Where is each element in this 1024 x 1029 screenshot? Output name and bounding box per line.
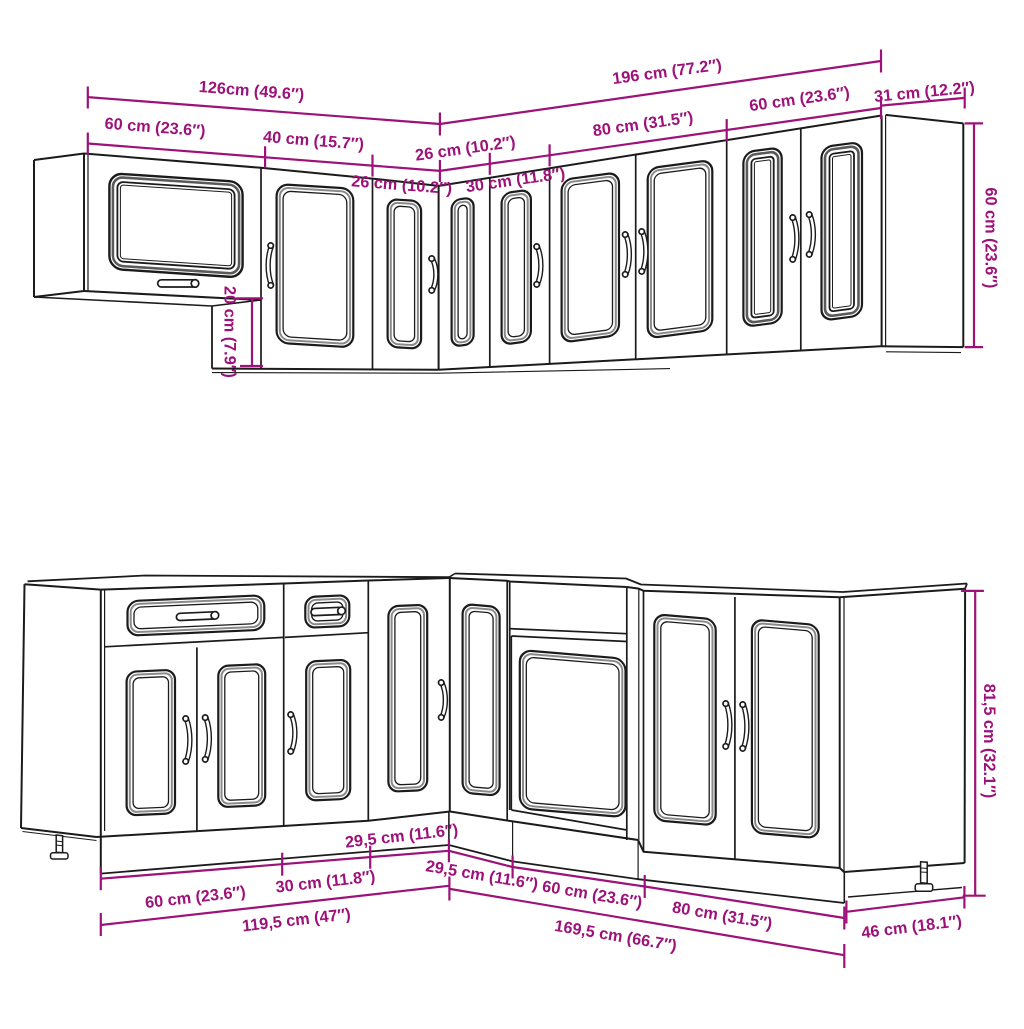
svg-text:81,5 cm (32.1″): 81,5 cm (32.1″) [980, 684, 998, 799]
svg-text:20 cm (7.9″): 20 cm (7.9″) [221, 286, 239, 378]
svg-text:60 cm (23.6″): 60 cm (23.6″) [982, 187, 1000, 288]
